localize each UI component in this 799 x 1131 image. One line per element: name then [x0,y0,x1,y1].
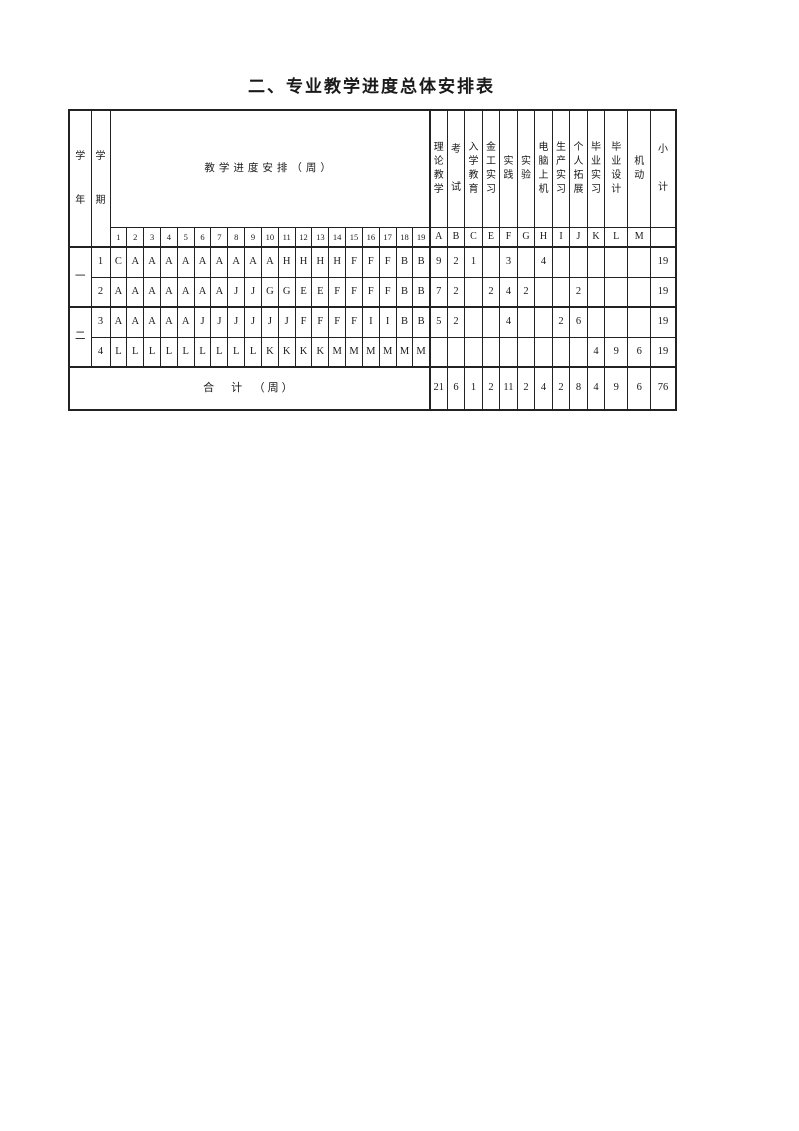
week-cell: G [278,277,295,307]
week-cell: L [194,337,211,367]
category-header-J: 个人拓展 [570,110,588,227]
week-cell: F [362,277,379,307]
category-code-B: B [447,227,465,247]
week-cell: A [144,307,161,337]
week-cell: J [194,307,211,337]
category-code-J: J [570,227,588,247]
category-header-L: 毕业设计 [605,110,628,227]
week-cell: L [160,337,177,367]
week-cell: B [413,307,430,337]
category-code-A: A [430,227,448,247]
category-total [605,277,628,307]
vertical-label: 机动 [628,112,650,225]
week-cell: M [329,337,346,367]
category-total: 4 [500,277,518,307]
category-total [552,337,570,367]
category-total: 2 [447,277,465,307]
category-total [587,307,605,337]
week-number: 5 [177,227,194,247]
subtotal-header: 小计 [651,110,676,227]
week-cell: B [413,247,430,277]
week-cell: M [362,337,379,367]
week-cell: A [177,247,194,277]
category-total: 2 [517,277,535,307]
week-cell: A [211,247,228,277]
year-column-header: 学年 [69,110,91,247]
week-cell: H [295,247,312,277]
week-cell: L [144,337,161,367]
week-cell: A [160,247,177,277]
vertical-label: 电脑上机 [535,112,552,225]
week-cell: A [211,277,228,307]
grand-total-value: 2 [482,367,500,410]
category-total [465,307,483,337]
category-total [500,337,518,367]
week-cell: I [379,307,396,337]
category-total [587,277,605,307]
week-number: 12 [295,227,312,247]
row-subtotal: 19 [651,247,676,277]
grand-total-value: 21 [430,367,448,410]
week-number: 6 [194,227,211,247]
subtotal-code-cell [651,227,676,247]
week-cell: A [194,247,211,277]
category-total [552,277,570,307]
category-total: 1 [465,247,483,277]
category-code-C: C [465,227,483,247]
year-label: 二 [69,307,91,367]
category-total: 9 [605,337,628,367]
week-cell: A [127,307,144,337]
week-cell: L [110,337,127,367]
week-cell: A [177,307,194,337]
vertical-label: 小计 [651,112,675,225]
category-total [535,337,553,367]
week-cell: L [127,337,144,367]
category-header-M: 机动 [628,110,651,227]
week-cell: J [278,307,295,337]
category-code-E: E [482,227,500,247]
week-number: 18 [396,227,413,247]
week-number: 7 [211,227,228,247]
week-cell: F [346,307,363,337]
category-total: 4 [587,337,605,367]
grand-total-value: 2 [517,367,535,410]
week-cell: F [329,307,346,337]
week-number: 14 [329,227,346,247]
week-number: 15 [346,227,363,247]
week-cell: L [211,337,228,367]
category-total [517,337,535,367]
vertical-label: 个人拓展 [570,112,587,225]
grand-total-value: 8 [570,367,588,410]
weeks-header: 教学进度安排（周） [110,110,430,227]
grand-total-label: 合 计 （周） [69,367,430,410]
vertical-label: 实践 [500,112,517,225]
category-total [628,277,651,307]
vertical-label: 理论教学 [431,112,447,225]
category-total [482,307,500,337]
category-total [570,247,588,277]
week-cell: M [413,337,430,367]
week-number: 8 [228,227,245,247]
week-cell: F [346,277,363,307]
grand-total-value: 6 [628,367,651,410]
week-number: 2 [127,227,144,247]
week-cell: H [278,247,295,277]
category-code-H: H [535,227,553,247]
semester-number: 4 [91,337,110,367]
category-header-K: 毕业实习 [587,110,605,227]
week-cell: J [245,307,262,337]
week-cell: A [160,307,177,337]
category-total [517,247,535,277]
week-cell: A [127,247,144,277]
week-cell: F [346,247,363,277]
category-total: 4 [500,307,518,337]
week-cell: B [396,307,413,337]
week-cell: F [379,277,396,307]
vertical-label: 生产实习 [553,112,570,225]
category-total [482,337,500,367]
grand-total-value: 4 [535,367,553,410]
week-cell: E [312,277,329,307]
category-total [482,247,500,277]
week-number: 11 [278,227,295,247]
document-page: 二、专业教学进度总体安排表 学年学期教学进度安排（周）理论教学考试入学教育金工实… [0,0,799,1131]
category-code-M: M [628,227,651,247]
category-header-I: 生产实习 [552,110,570,227]
grand-total-value: 6 [447,367,465,410]
category-total [570,337,588,367]
category-total: 5 [430,307,448,337]
category-total [552,247,570,277]
week-cell: A [144,247,161,277]
week-cell: J [261,307,278,337]
grand-total-value: 2 [552,367,570,410]
row-subtotal: 19 [651,307,676,337]
category-total [605,307,628,337]
week-cell: I [362,307,379,337]
category-header-B: 考试 [447,110,465,227]
week-cell: K [261,337,278,367]
week-cell: M [346,337,363,367]
week-cell: A [110,307,127,337]
category-total [447,337,465,367]
category-header-C: 入学教育 [465,110,483,227]
category-total: 4 [535,247,553,277]
category-total: 2 [552,307,570,337]
week-cell: F [379,247,396,277]
week-cell: F [312,307,329,337]
category-total: 2 [447,307,465,337]
semester-number: 3 [91,307,110,337]
category-total: 9 [430,247,448,277]
week-cell: M [379,337,396,367]
week-number: 19 [413,227,430,247]
week-cell: F [362,247,379,277]
category-total: 6 [628,337,651,367]
vertical-label: 实验 [518,112,535,225]
semester-number: 2 [91,277,110,307]
week-cell: J [211,307,228,337]
week-cell: K [278,337,295,367]
week-cell: K [295,337,312,367]
category-total [628,307,651,337]
week-cell: A [177,277,194,307]
week-cell: F [329,277,346,307]
category-total: 6 [570,307,588,337]
category-total: 7 [430,277,448,307]
year-label: 一 [69,247,91,307]
week-cell: C [110,247,127,277]
category-total: 2 [447,247,465,277]
category-code-F: F [500,227,518,247]
semester-number: 1 [91,247,110,277]
week-cell: A [110,277,127,307]
week-cell: A [261,247,278,277]
grand-total-value: 9 [605,367,628,410]
category-total: 2 [570,277,588,307]
week-cell: H [329,247,346,277]
vertical-label: 毕业设计 [605,112,627,225]
week-cell: K [312,337,329,367]
page-title: 二、专业教学进度总体安排表 [68,76,675,98]
week-number: 1 [110,227,127,247]
category-code-L: L [605,227,628,247]
week-number: 13 [312,227,329,247]
week-cell: M [396,337,413,367]
category-total [605,247,628,277]
week-number: 10 [261,227,278,247]
category-total [628,247,651,277]
week-cell: G [261,277,278,307]
week-number: 4 [160,227,177,247]
grand-total-value: 4 [587,367,605,410]
week-cell: J [228,277,245,307]
category-total [587,247,605,277]
category-header-G: 实验 [517,110,535,227]
teaching-schedule-table: 学年学期教学进度安排（周）理论教学考试入学教育金工实习实践实验电脑上机生产实习个… [68,109,677,411]
week-cell: A [245,247,262,277]
vertical-label: 入学教育 [465,112,482,225]
week-cell: A [144,277,161,307]
category-header-E: 金工实习 [482,110,500,227]
grand-total-value: 11 [500,367,518,410]
semester-column-header: 学期 [91,110,110,247]
week-cell: B [413,277,430,307]
category-total: 2 [482,277,500,307]
category-header-A: 理论教学 [430,110,448,227]
week-cell: A [160,277,177,307]
category-total [465,277,483,307]
week-cell: L [228,337,245,367]
week-cell: F [295,307,312,337]
category-code-G: G [517,227,535,247]
week-cell: A [127,277,144,307]
week-cell: H [312,247,329,277]
grand-total-value: 1 [465,367,483,410]
week-cell: A [228,247,245,277]
week-cell: J [228,307,245,337]
week-number: 17 [379,227,396,247]
vertical-label: 考试 [448,112,465,225]
week-number: 16 [362,227,379,247]
week-cell: E [295,277,312,307]
category-total [465,337,483,367]
week-number: 9 [245,227,262,247]
row-subtotal: 19 [651,337,676,367]
week-cell: J [245,277,262,307]
category-header-F: 实践 [500,110,518,227]
row-subtotal: 19 [651,277,676,307]
week-cell: B [396,277,413,307]
grand-total-subtotal: 76 [651,367,676,410]
category-header-H: 电脑上机 [535,110,553,227]
category-total [535,307,553,337]
vertical-label: 毕业实习 [588,112,605,225]
week-number: 3 [144,227,161,247]
week-cell: L [177,337,194,367]
week-cell: B [396,247,413,277]
vertical-label: 学年 [70,112,91,245]
category-total: 3 [500,247,518,277]
category-code-K: K [587,227,605,247]
vertical-label: 学期 [92,112,110,245]
week-cell: L [245,337,262,367]
vertical-label: 金工实习 [483,112,500,225]
category-total [430,337,448,367]
category-total [535,277,553,307]
category-total [517,307,535,337]
week-cell: A [194,277,211,307]
category-code-I: I [552,227,570,247]
